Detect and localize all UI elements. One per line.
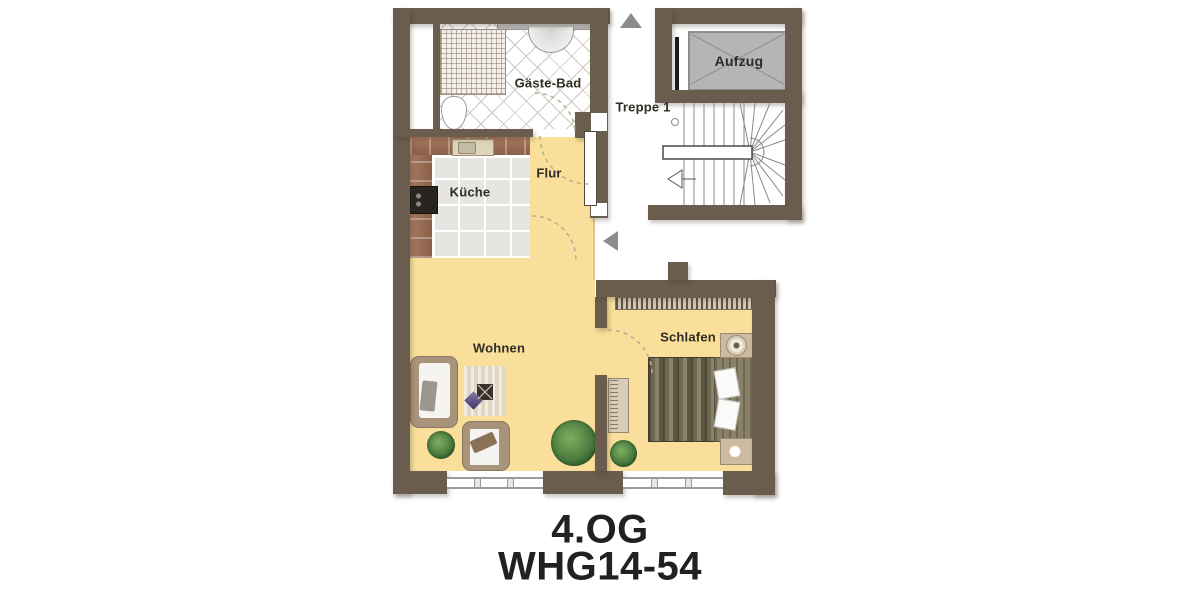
elevator-door: [675, 37, 679, 90]
wall: [595, 297, 607, 328]
bedside-lamp-icon: [726, 335, 747, 356]
plant-icon: [610, 440, 637, 467]
floorplan-canvas: Gäste-Bad Treppe 1 Aufzug Küche Flur Woh…: [0, 0, 1200, 600]
wall: [752, 280, 775, 495]
bedroom-radiator: [615, 297, 754, 310]
unit-title: WHG14-54: [498, 545, 702, 590]
bed-pillow: [714, 367, 741, 399]
wall: [543, 471, 623, 494]
stairwell-wall: [785, 8, 802, 220]
hallway-edge-line: [593, 218, 595, 280]
shower-area: [440, 29, 506, 95]
stairwell-wall: [648, 205, 802, 220]
kitchen-sink: [452, 139, 494, 156]
room-label-hallway: Flur: [536, 166, 561, 181]
staircase-steps: [684, 103, 785, 205]
room-label-stairs: Treppe 1: [615, 100, 670, 115]
sofa-pillow: [419, 380, 437, 411]
wall: [393, 129, 533, 137]
wall: [393, 471, 447, 494]
wall: [596, 280, 776, 297]
wall: [433, 24, 440, 129]
plant-icon: [551, 420, 597, 466]
kitchen-stove: [410, 186, 438, 214]
entry-door-frame: [591, 113, 607, 131]
wall: [393, 8, 410, 494]
stairwell-wall: [655, 8, 672, 103]
wall: [595, 375, 607, 471]
bedroom-door-gap-floor: [595, 328, 607, 375]
bedroom-window: [623, 477, 723, 489]
bed-duvet: [648, 357, 716, 442]
room-label-kitchen: Küche: [450, 185, 491, 200]
entry-arrow-icon: [603, 231, 618, 251]
stairwell-wall: [672, 90, 802, 103]
living-room-window: [447, 477, 543, 489]
room-label-bedroom: Schlafen: [660, 330, 716, 345]
north-arrow-icon: [620, 13, 642, 28]
entry-door: [584, 131, 597, 206]
stair-landing: [663, 119, 752, 160]
plant-icon: [427, 431, 455, 459]
room-label-guest-bath: Gäste-Bad: [515, 76, 582, 91]
kitchen-floor: [432, 155, 530, 258]
nightstand: [720, 438, 753, 465]
wall: [668, 262, 688, 280]
stair-direction-arrow-icon: [668, 170, 696, 188]
dresser-drawer-lines: [610, 380, 618, 429]
stairwell-wall: [655, 8, 802, 24]
room-label-living: Wohnen: [473, 341, 525, 356]
wall: [393, 8, 610, 24]
room-label-elevator: Aufzug: [715, 53, 764, 69]
